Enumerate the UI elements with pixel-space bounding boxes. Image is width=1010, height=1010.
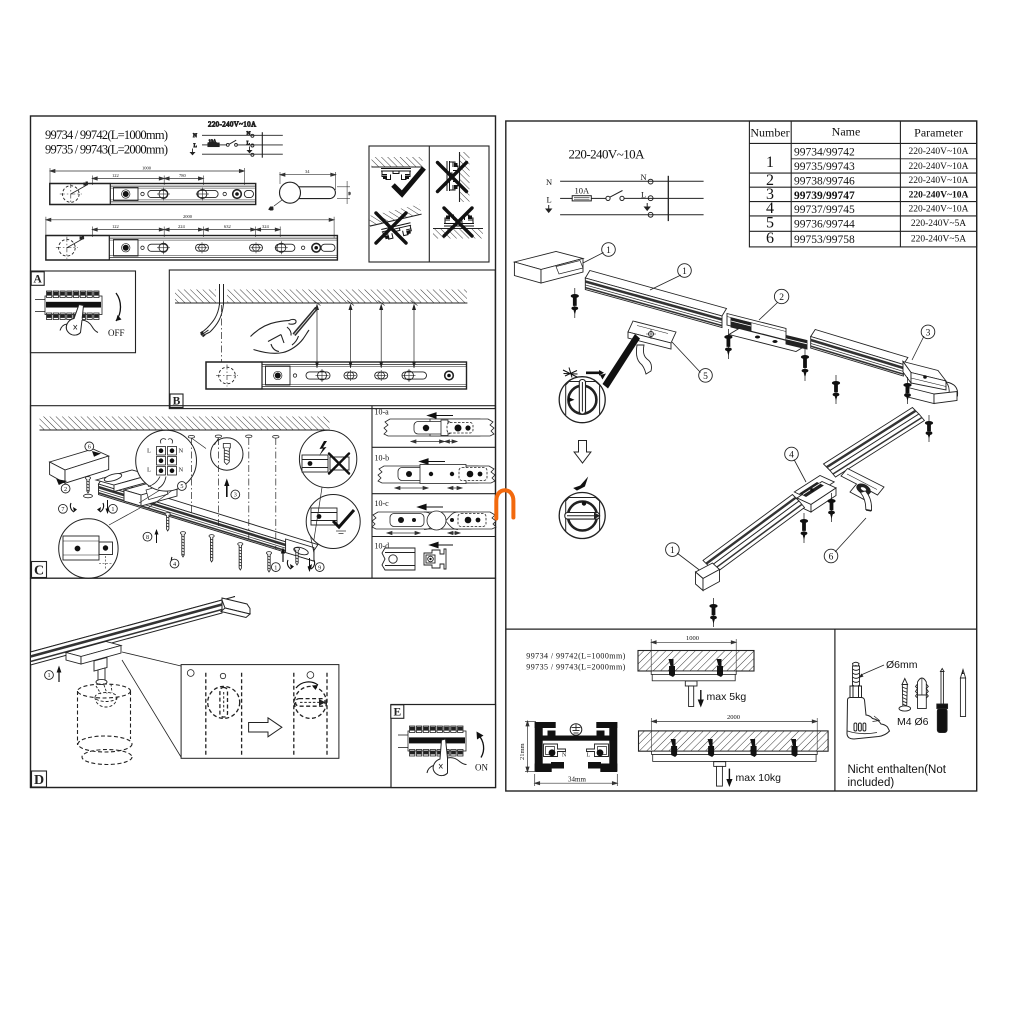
svg-text:99737/99745: 99737/99745 (794, 204, 855, 216)
svg-text:9: 9 (318, 564, 321, 571)
svg-text:5: 5 (703, 372, 708, 382)
svg-text:34: 34 (305, 169, 310, 174)
svg-text:780: 780 (179, 173, 187, 178)
svg-text:Number: Number (750, 126, 789, 140)
svg-text:N: N (546, 177, 552, 187)
svg-text:224: 224 (178, 224, 186, 229)
svg-text:99739/99747: 99739/99747 (794, 190, 855, 202)
svg-text:99734 / 99742(L=1000mm): 99734 / 99742(L=1000mm) (526, 651, 625, 660)
svg-text:6: 6 (829, 552, 834, 562)
svg-text:1: 1 (47, 672, 50, 679)
svg-text:99735 / 99743(L=2000mm): 99735 / 99743(L=2000mm) (45, 143, 168, 157)
svg-text:220-240V~10A: 220-240V~10A (908, 162, 968, 172)
svg-text:1: 1 (670, 546, 675, 556)
svg-text:included): included) (848, 777, 895, 789)
svg-text:8: 8 (146, 534, 149, 541)
svg-text:122: 122 (112, 173, 119, 178)
svg-text:220-240V~5A: 220-240V~5A (911, 219, 966, 229)
svg-text:C: C (34, 564, 44, 579)
svg-text:1: 1 (274, 564, 277, 571)
svg-text:220-240V~10A: 220-240V~10A (909, 191, 969, 201)
svg-text:1: 1 (682, 267, 687, 277)
svg-text:7: 7 (61, 506, 64, 513)
svg-text:99738/99746: 99738/99746 (794, 176, 855, 188)
svg-text:2000: 2000 (183, 214, 193, 219)
svg-text:99736/99744: 99736/99744 (794, 218, 855, 230)
svg-text:N: N (641, 172, 647, 182)
svg-text:N: N (562, 753, 567, 759)
svg-text:1: 1 (606, 246, 611, 256)
svg-text:99735/99743: 99735/99743 (794, 161, 855, 173)
svg-text:Name: Name (832, 125, 861, 139)
svg-text:D: D (34, 773, 44, 788)
svg-text:10-b: 10-b (375, 454, 390, 463)
svg-text:M4 Ø6: M4 Ø6 (897, 716, 929, 728)
svg-text:N: N (179, 448, 184, 455)
svg-text:220-240V~10A: 220-240V~10A (208, 121, 256, 129)
svg-text:220-240V~5A: 220-240V~5A (911, 235, 966, 245)
svg-text:2: 2 (779, 293, 784, 303)
svg-text:A: A (34, 273, 43, 285)
svg-text:2000: 2000 (727, 714, 740, 721)
svg-text:1: 1 (111, 506, 114, 513)
svg-text:N: N (179, 467, 184, 474)
svg-text:max 5kg: max 5kg (707, 691, 747, 703)
svg-text:220-240V~10A: 220-240V~10A (569, 147, 646, 162)
svg-text:1: 1 (766, 154, 774, 171)
svg-text:N: N (193, 133, 197, 139)
svg-text:220-240V~10A: 220-240V~10A (908, 176, 968, 186)
svg-text:L: L (547, 195, 552, 205)
svg-text:10-a: 10-a (375, 408, 390, 417)
svg-text:220-240V~10A: 220-240V~10A (908, 205, 968, 215)
svg-text:99735 / 99743(L=2000mm): 99735 / 99743(L=2000mm) (526, 663, 625, 672)
svg-text:9: 9 (349, 191, 351, 196)
svg-text:632: 632 (224, 224, 231, 229)
svg-text:Parameter: Parameter (914, 126, 963, 140)
svg-text:ON: ON (475, 763, 488, 773)
svg-text:1000: 1000 (142, 165, 152, 170)
svg-text:10A: 10A (575, 186, 591, 196)
svg-text:5: 5 (766, 215, 774, 232)
svg-text:5: 5 (180, 483, 183, 490)
svg-text:45: 45 (269, 206, 273, 211)
svg-text:34mm: 34mm (568, 776, 586, 784)
svg-text:L: L (147, 467, 151, 474)
svg-text:220-240V~10A: 220-240V~10A (908, 147, 968, 157)
svg-text:L: L (587, 753, 591, 759)
svg-text:E: E (393, 706, 401, 718)
svg-text:Ø6mm: Ø6mm (886, 659, 918, 671)
svg-text:4: 4 (789, 450, 794, 460)
svg-text:324: 324 (262, 224, 270, 229)
svg-text:122: 122 (112, 224, 119, 229)
svg-text:2: 2 (64, 486, 67, 493)
svg-text:3: 3 (926, 328, 931, 338)
svg-text:n5: n5 (84, 181, 88, 186)
svg-text:6: 6 (766, 230, 774, 247)
svg-text:99753/99758: 99753/99758 (794, 234, 855, 246)
svg-text:OFF: OFF (108, 328, 125, 338)
svg-text:3: 3 (234, 492, 237, 499)
svg-text:n5: n5 (80, 235, 84, 240)
svg-text:10-c: 10-c (375, 499, 390, 508)
svg-text:99734 / 99742(L=1000mm): 99734 / 99742(L=1000mm) (45, 128, 168, 142)
svg-text:N: N (247, 131, 251, 137)
svg-text:99734/99742: 99734/99742 (794, 147, 855, 159)
svg-text:L: L (147, 448, 151, 455)
svg-text:10A: 10A (209, 138, 218, 143)
svg-text:L: L (641, 190, 646, 200)
svg-text:21mm: 21mm (519, 743, 526, 760)
svg-text:4: 4 (173, 561, 176, 568)
svg-text:6: 6 (88, 444, 91, 451)
svg-text:max 10kg: max 10kg (736, 772, 782, 784)
svg-text:1000: 1000 (686, 635, 699, 642)
svg-text:Nicht enthalten(Not: Nicht enthalten(Not (848, 764, 947, 776)
